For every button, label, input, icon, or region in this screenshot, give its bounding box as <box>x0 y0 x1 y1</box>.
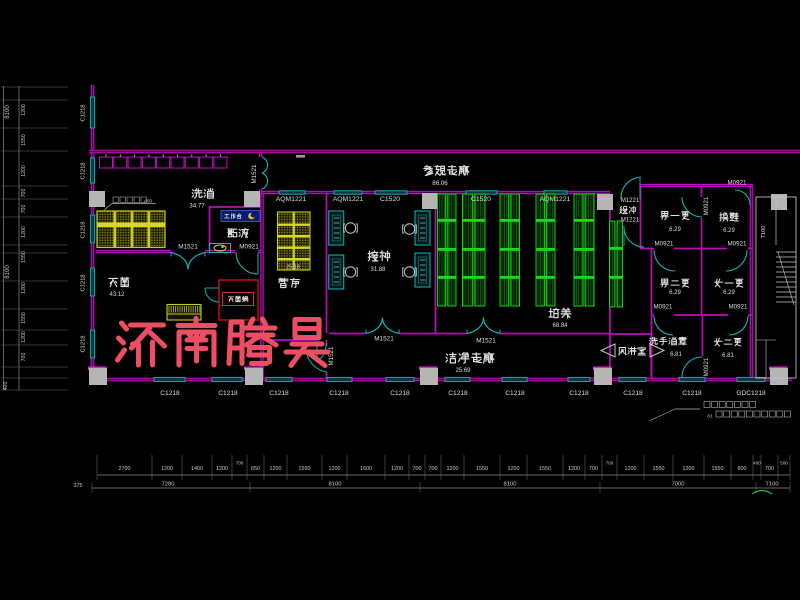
svg-text:M1221: M1221 <box>621 198 640 204</box>
svg-text:700: 700 <box>21 205 27 214</box>
svg-text:T100: T100 <box>761 226 767 239</box>
svg-text:1200: 1200 <box>391 466 403 472</box>
svg-text:1550: 1550 <box>712 466 724 472</box>
svg-text:C1218: C1218 <box>81 335 87 352</box>
svg-text:AQM1221: AQM1221 <box>276 196 307 203</box>
svg-text:1200: 1200 <box>447 466 459 472</box>
svg-text:1550: 1550 <box>21 251 27 263</box>
svg-text:C1218: C1218 <box>81 162 87 179</box>
svg-text:1200: 1200 <box>568 466 580 472</box>
svg-text:800: 800 <box>738 466 747 472</box>
svg-text:M0921: M0921 <box>728 241 747 248</box>
svg-text:700: 700 <box>429 466 438 472</box>
svg-text:700: 700 <box>21 189 27 198</box>
svg-text:C1218: C1218 <box>682 390 702 397</box>
svg-text:2700: 2700 <box>119 466 131 472</box>
svg-text:C1218: C1218 <box>269 390 289 397</box>
svg-text:1550: 1550 <box>539 466 551 472</box>
svg-text:C1218: C1218 <box>160 390 180 397</box>
svg-text:1200: 1200 <box>21 226 27 238</box>
svg-text:1200: 1200 <box>625 466 637 472</box>
svg-text:AQM1221: AQM1221 <box>333 196 364 203</box>
svg-text:6.29: 6.29 <box>723 290 735 296</box>
svg-text:1200: 1200 <box>161 466 173 472</box>
svg-text:6.29: 6.29 <box>669 227 681 233</box>
svg-text:1200: 1200 <box>508 466 520 472</box>
svg-text:M1521: M1521 <box>178 244 198 251</box>
svg-text:M0921: M0921 <box>704 357 710 376</box>
svg-text:1200: 1200 <box>21 104 27 116</box>
svg-text:700: 700 <box>589 466 598 472</box>
svg-text:C1218: C1218 <box>505 390 525 397</box>
svg-text:43.12: 43.12 <box>109 292 125 298</box>
svg-text:GDC1218: GDC1218 <box>736 390 766 397</box>
svg-text:M0921: M0921 <box>704 196 710 215</box>
svg-text:1550: 1550 <box>476 466 488 472</box>
svg-text:7280: 7280 <box>162 482 175 488</box>
svg-text:6.29: 6.29 <box>723 228 735 234</box>
svg-text:8100: 8100 <box>329 482 342 488</box>
svg-text:T100: T100 <box>765 482 778 488</box>
svg-text:1200: 1200 <box>216 466 228 472</box>
svg-text:700: 700 <box>413 466 422 472</box>
svg-text:M0921: M0921 <box>729 304 748 311</box>
svg-text:C1218: C1218 <box>390 390 410 397</box>
svg-text:86.06: 86.06 <box>432 180 448 187</box>
svg-text:1400: 1400 <box>191 466 203 472</box>
svg-text:C1218: C1218 <box>569 390 589 397</box>
svg-text:1200: 1200 <box>21 282 27 294</box>
svg-text:500: 500 <box>780 461 788 466</box>
svg-text:M1521: M1521 <box>328 346 335 365</box>
svg-text:400: 400 <box>3 382 9 391</box>
svg-text:61: 61 <box>707 414 713 420</box>
svg-text:700: 700 <box>765 466 774 472</box>
svg-text:AQM1221: AQM1221 <box>540 196 571 203</box>
svg-text:68.84: 68.84 <box>552 323 568 329</box>
svg-text:1200: 1200 <box>21 331 27 343</box>
svg-text:1550: 1550 <box>653 466 665 472</box>
svg-text:700: 700 <box>606 461 614 466</box>
svg-text:1550: 1550 <box>299 466 311 472</box>
svg-text:25.18: 25.18 <box>286 265 300 271</box>
svg-text:C1218: C1218 <box>623 390 643 397</box>
svg-text:C1218: C1218 <box>329 390 349 397</box>
svg-text:25.69: 25.69 <box>455 368 471 374</box>
svg-text:700: 700 <box>236 461 244 466</box>
svg-text:C1520: C1520 <box>380 196 400 203</box>
svg-text:400: 400 <box>753 461 761 466</box>
svg-text:M1221: M1221 <box>621 218 640 224</box>
svg-text:8100: 8100 <box>504 482 517 488</box>
svg-text:8100: 8100 <box>5 265 11 279</box>
svg-text:6.81: 6.81 <box>722 353 734 359</box>
svg-text:6.29: 6.29 <box>669 290 681 296</box>
svg-text:1200: 1200 <box>270 466 282 472</box>
svg-text:C1218: C1218 <box>81 221 87 238</box>
svg-text:1550: 1550 <box>21 134 27 146</box>
svg-text:C1218: C1218 <box>448 390 468 397</box>
svg-text:M0921: M0921 <box>239 244 259 251</box>
svg-text:375: 375 <box>74 483 83 489</box>
svg-text:C1218: C1218 <box>81 274 87 291</box>
svg-text:M0921: M0921 <box>654 304 673 311</box>
svg-text:1600: 1600 <box>360 466 372 472</box>
svg-text:31.88: 31.88 <box>370 267 386 273</box>
svg-text:1200: 1200 <box>329 466 341 472</box>
svg-text:A50: A50 <box>144 199 153 204</box>
svg-text:1200: 1200 <box>21 165 27 177</box>
svg-text:C1520: C1520 <box>471 196 491 203</box>
svg-text:C1218: C1218 <box>218 390 238 397</box>
svg-text:700: 700 <box>21 353 27 362</box>
svg-text:M1521: M1521 <box>374 336 394 343</box>
svg-text:650: 650 <box>251 466 260 472</box>
svg-text:8100: 8100 <box>5 105 11 119</box>
svg-text:M1521: M1521 <box>251 164 258 183</box>
svg-text:1200: 1200 <box>683 466 695 472</box>
svg-text:M0921: M0921 <box>728 180 747 187</box>
svg-text:M1521: M1521 <box>476 338 496 345</box>
svg-text:1550: 1550 <box>21 312 27 324</box>
svg-text:M0921: M0921 <box>655 241 674 248</box>
svg-text:6.81: 6.81 <box>670 352 682 358</box>
svg-text:7000: 7000 <box>672 482 685 488</box>
svg-text:C1218: C1218 <box>81 104 87 121</box>
svg-text:34.77: 34.77 <box>189 203 205 210</box>
